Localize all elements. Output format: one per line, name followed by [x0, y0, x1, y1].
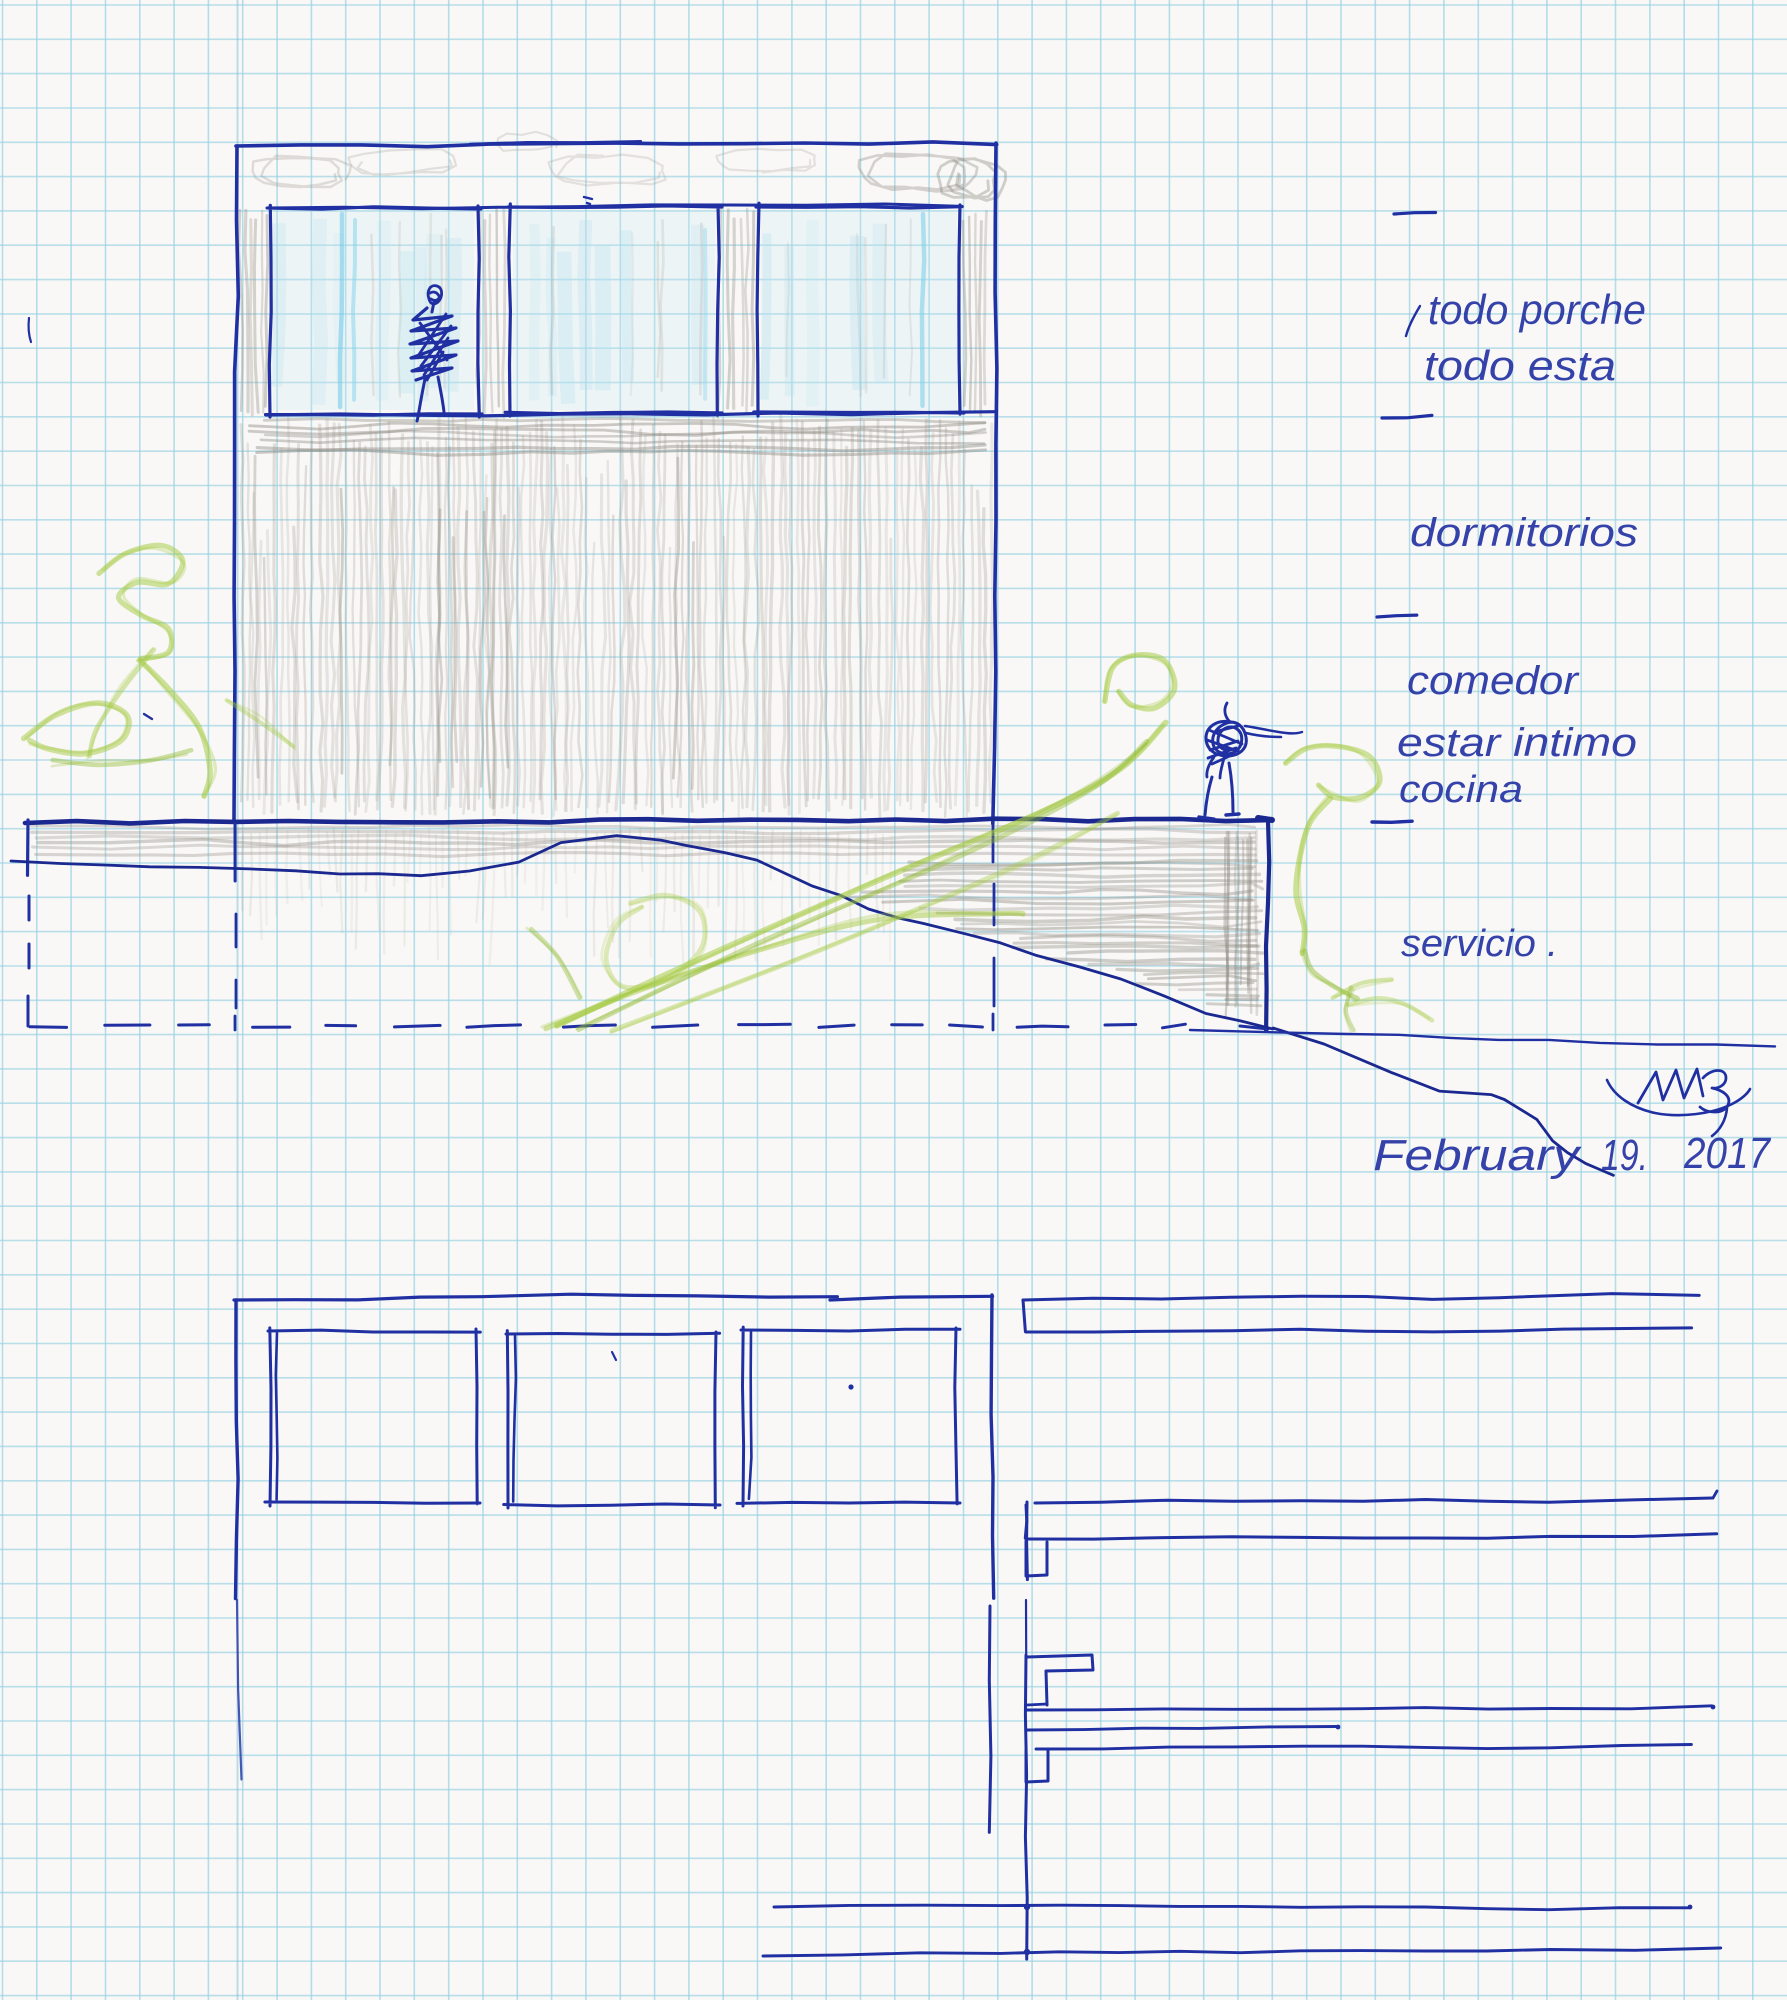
- svg-text:servicio .: servicio .: [1401, 923, 1558, 965]
- svg-text:todo esta: todo esta: [1424, 342, 1616, 389]
- svg-text:todo porche: todo porche: [1428, 286, 1646, 333]
- svg-text:cocina: cocina: [1399, 769, 1523, 811]
- svg-text:dormitorios: dormitorios: [1410, 511, 1638, 555]
- svg-text:February: February: [1373, 1131, 1582, 1180]
- svg-text:2017: 2017: [1683, 1129, 1771, 1178]
- svg-text:estar intimo: estar intimo: [1397, 721, 1637, 765]
- svg-text:comedor: comedor: [1407, 659, 1580, 703]
- svg-text:19.: 19.: [1601, 1131, 1648, 1180]
